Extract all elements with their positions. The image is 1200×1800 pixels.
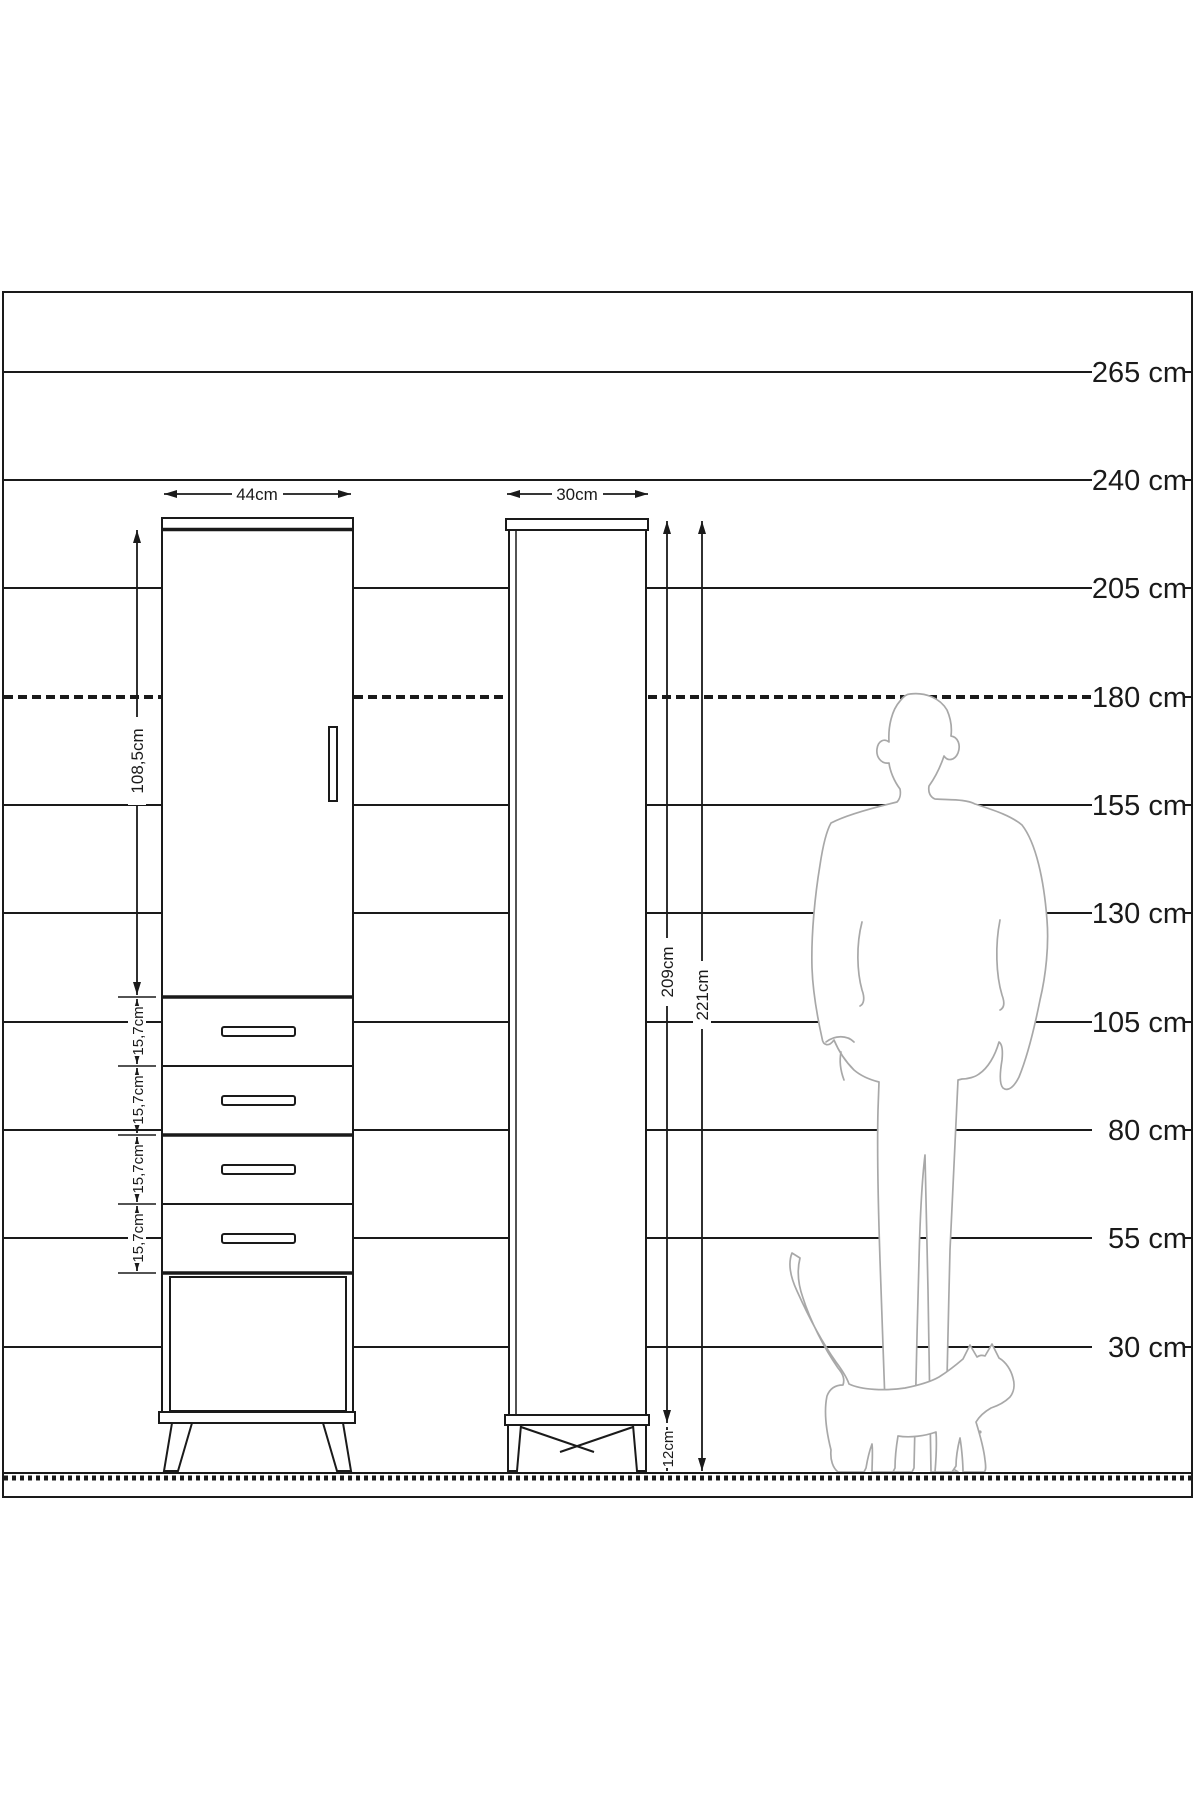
front-width-label: 44cm <box>236 485 278 504</box>
drawer-dimension-1: 15,7cm <box>128 999 147 1064</box>
front-leg-right <box>323 1423 351 1471</box>
scale-label: 55 cm <box>1108 1223 1187 1255</box>
dimension-diagram: 265 cm 240 cm 205 cm 180 cm 155 cm 130 c… <box>0 0 1200 1800</box>
scale-label: 30 cm <box>1108 1332 1187 1364</box>
cat-mark-dot <box>978 1430 981 1433</box>
side-depth-dimension: 30cm <box>507 485 648 504</box>
leg-height-label: 12cm <box>660 1431 677 1468</box>
side-body <box>509 525 646 1415</box>
drawer-height-label: 15,7cm <box>130 1075 147 1124</box>
scale-label: 205 cm <box>1092 573 1187 605</box>
leg-height-label-group: 12cm <box>658 1430 677 1468</box>
side-view-cabinet <box>505 519 649 1471</box>
door-height-label: 108,5cm <box>128 728 147 793</box>
front-leg-left <box>164 1423 192 1471</box>
scale-label: 155 cm <box>1092 790 1187 822</box>
scale-label: 180 cm <box>1092 682 1187 714</box>
side-leg-left <box>508 1425 521 1471</box>
front-width-dimension: 44cm <box>164 485 351 504</box>
carcass-height-dimension: 209cm <box>658 521 677 1423</box>
carcass-height-label-group: 209cm <box>658 938 677 1006</box>
person-silhouette <box>812 694 1048 1472</box>
total-height-dimension: 221cm <box>693 521 712 1471</box>
scale-line-265: 265 cm <box>4 357 1192 389</box>
scale-label: 265 cm <box>1092 357 1187 389</box>
drawer-dimension-4: 15,7cm <box>128 1206 147 1271</box>
side-top-panel <box>506 519 648 530</box>
drawer-label-group: 15,7cm <box>128 1075 147 1125</box>
drawer-handle-4 <box>222 1234 295 1243</box>
drawer-height-label: 15,7cm <box>130 1144 147 1193</box>
drawer-label-group: 15,7cm <box>128 1006 147 1056</box>
side-base-panel <box>505 1415 649 1425</box>
drawer-label-group: 15,7cm <box>128 1213 147 1263</box>
scale-label: 240 cm <box>1092 465 1187 497</box>
drawer-height-label: 15,7cm <box>130 1006 147 1055</box>
side-leg-brace-left <box>521 1427 594 1452</box>
total-height-label-group: 221cm <box>693 961 712 1029</box>
side-leg-brace-right <box>560 1427 633 1452</box>
scale-label: 105 cm <box>1092 1007 1187 1039</box>
carcass-height-label: 209cm <box>658 946 677 997</box>
drawer-handle-1 <box>222 1027 295 1036</box>
scale-label: 80 cm <box>1108 1115 1187 1147</box>
side-leg-right <box>633 1425 646 1471</box>
base-panel <box>159 1412 355 1423</box>
drawer-dimension-3: 15,7cm <box>128 1137 147 1202</box>
door-height-label-group: 108,5cm <box>128 717 147 805</box>
drawer-handle-2 <box>222 1096 295 1105</box>
total-height-label: 221cm <box>693 969 712 1020</box>
drawer-height-label: 15,7cm <box>130 1213 147 1262</box>
drawer-dimension-2: 15,7cm <box>128 1068 147 1133</box>
door-height-dimension: 108,5cm <box>128 530 147 995</box>
drawer-handle-3 <box>222 1165 295 1174</box>
door-handle <box>329 727 337 801</box>
drawer-label-group: 15,7cm <box>128 1144 147 1194</box>
ground-line <box>4 1473 1192 1478</box>
diagram-canvas: 265 cm 240 cm 205 cm 180 cm 155 cm 130 c… <box>0 0 1200 1800</box>
person-outline <box>812 694 1048 1472</box>
scale-label: 130 cm <box>1092 898 1187 930</box>
leg-height-dimension: 12cm <box>658 1427 677 1471</box>
side-depth-label: 30cm <box>556 485 598 504</box>
front-view-cabinet <box>159 518 355 1471</box>
